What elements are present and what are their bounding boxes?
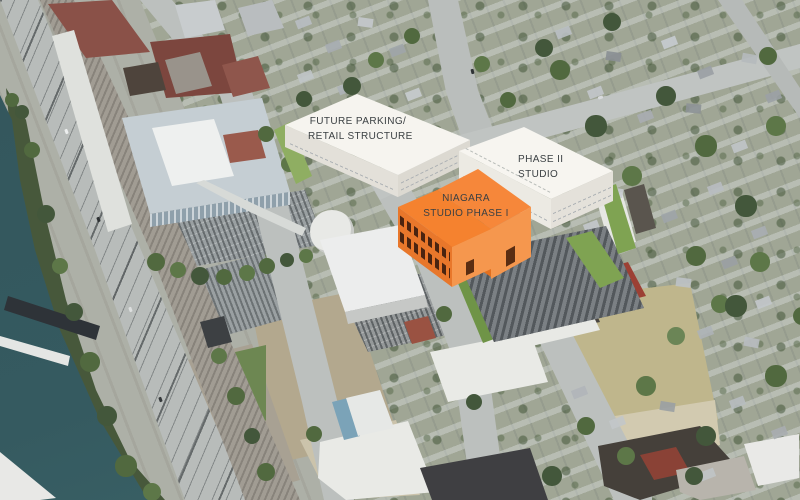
label-phase1: NIAGARA STUDIO PHASE I: [416, 191, 516, 221]
label-phase1-line2: STUDIO PHASE I: [416, 206, 516, 221]
label-future-parking: FUTURE PARKING/ RETAIL STRUCTURE: [308, 114, 408, 144]
label-future-parking-line2: RETAIL STRUCTURE: [308, 129, 408, 144]
house-roof: [357, 17, 373, 28]
phase1-door: [466, 259, 474, 276]
label-phase2-line2: STUDIO: [518, 167, 563, 182]
house-roof: [676, 277, 692, 288]
label-phase2: PHASE II STUDIO: [518, 152, 563, 182]
aerial-site-rendering: FUTURE PARKING/ RETAIL STRUCTURE NIAGARA…: [0, 0, 800, 500]
house-roof: [605, 51, 621, 62]
house-roof: [686, 103, 702, 114]
label-phase2-line1: PHASE II: [518, 152, 563, 167]
label-future-parking-line1: FUTURE PARKING/: [308, 114, 408, 129]
tree-cluster: [0, 0, 8, 8]
phase1-door: [506, 246, 515, 267]
label-phase1-line1: NIAGARA: [416, 191, 516, 206]
